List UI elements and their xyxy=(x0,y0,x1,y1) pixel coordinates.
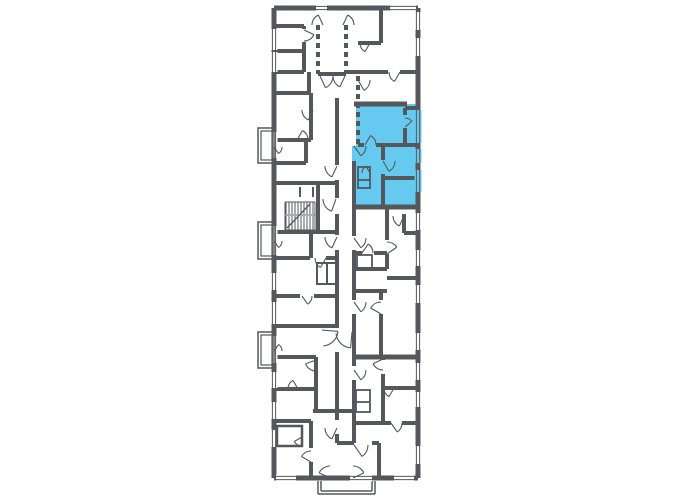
floor-plan-svg xyxy=(0,0,680,500)
door-swings xyxy=(274,15,412,478)
floor-plan xyxy=(0,0,680,500)
walls xyxy=(274,8,418,494)
stair-hatching xyxy=(286,202,313,230)
